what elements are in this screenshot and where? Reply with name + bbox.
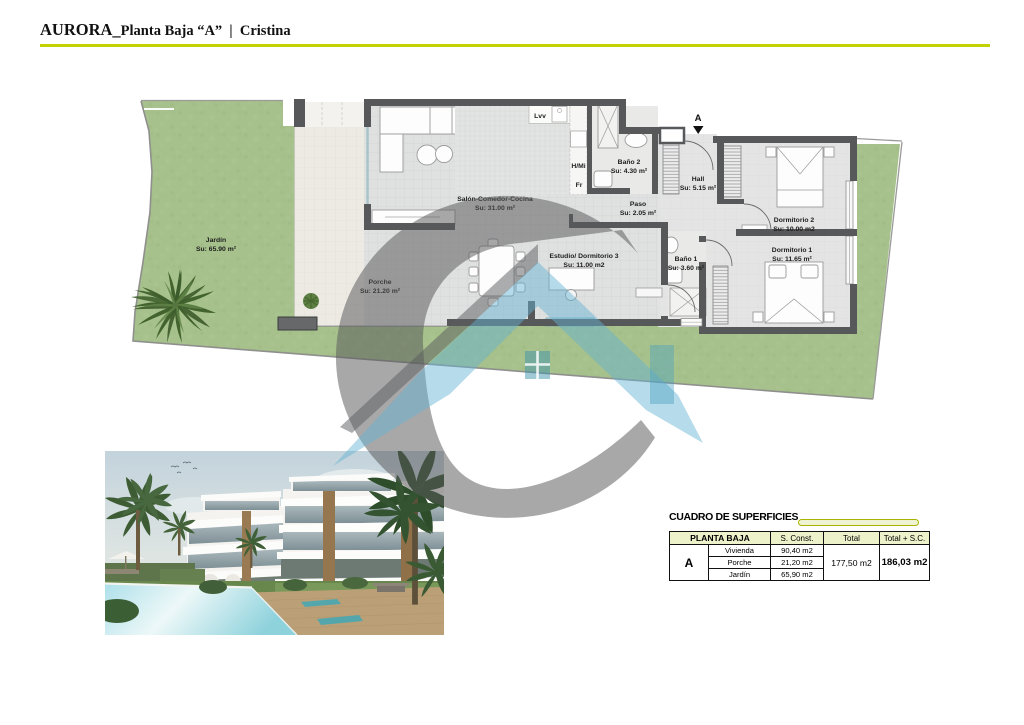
svg-text:Su: 10.00 m2: Su: 10.00 m2 (773, 226, 815, 233)
svg-text:Su: 65.90 m²: Su: 65.90 m² (196, 246, 237, 253)
svg-text:Su: 11.65 m²: Su: 11.65 m² (772, 256, 812, 263)
svg-text:Hall: Hall (692, 176, 705, 183)
svg-text:Su: 5.15 m²: Su: 5.15 m² (680, 185, 717, 192)
svg-text:Estudio/ Dormitorio 3: Estudio/ Dormitorio 3 (549, 253, 618, 260)
svg-text:Jardín: Jardín (206, 237, 226, 244)
svg-text:Lvv: Lvv (534, 113, 546, 120)
svg-text:A: A (695, 113, 702, 124)
svg-text:Su: 11.00 m2: Su: 11.00 m2 (563, 262, 604, 269)
svg-text:Fr: Fr (576, 182, 583, 189)
svg-text:Baño 2: Baño 2 (618, 159, 641, 166)
svg-text:Dormitorio 2: Dormitorio 2 (774, 217, 815, 224)
svg-text:Paso: Paso (630, 201, 646, 208)
svg-text:H/Mi: H/Mi (571, 163, 585, 170)
svg-text:Dormitorio 1: Dormitorio 1 (772, 247, 813, 254)
svg-text:Baño 1: Baño 1 (675, 256, 698, 263)
svg-text:Su: 2.05 m²: Su: 2.05 m² (620, 210, 657, 217)
svg-text:Su: 3.60 m²: Su: 3.60 m² (668, 265, 705, 272)
svg-text:Su: 4.30 m²: Su: 4.30 m² (611, 168, 648, 175)
